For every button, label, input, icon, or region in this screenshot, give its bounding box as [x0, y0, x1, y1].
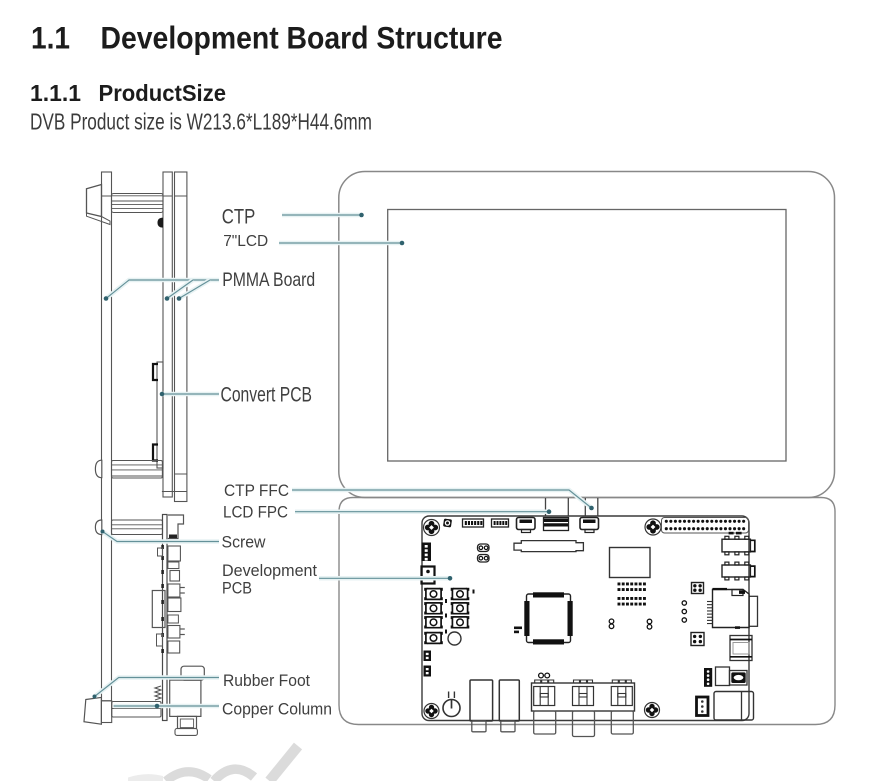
svg-text:CTP: CTP: [222, 205, 256, 228]
svg-text:Copper Column: Copper Column: [222, 701, 332, 719]
svg-text:1.1: 1.1: [31, 19, 70, 55]
svg-text:1.1.1: 1.1.1: [30, 80, 81, 106]
svg-text:CTP FFC: CTP FFC: [224, 482, 289, 500]
svg-text:LCD FPC: LCD FPC: [223, 503, 288, 521]
svg-text:Rubber Foot: Rubber Foot: [223, 672, 310, 690]
svg-text:ProductSize: ProductSize: [99, 80, 227, 106]
svg-text:Convert PCB: Convert PCB: [221, 384, 313, 407]
svg-text:7"LCD: 7"LCD: [223, 233, 268, 250]
svg-text:PMMA Board: PMMA Board: [222, 269, 315, 291]
svg-text:DVB Product size is W213.6*L18: DVB Product size is W213.6*L189*H44.6mm: [30, 109, 372, 135]
svg-text:PCB: PCB: [222, 579, 252, 597]
svg-text:Development Board Structure: Development Board Structure: [101, 19, 503, 55]
svg-text:Development: Development: [222, 562, 317, 580]
svg-text:Screw: Screw: [222, 534, 266, 552]
